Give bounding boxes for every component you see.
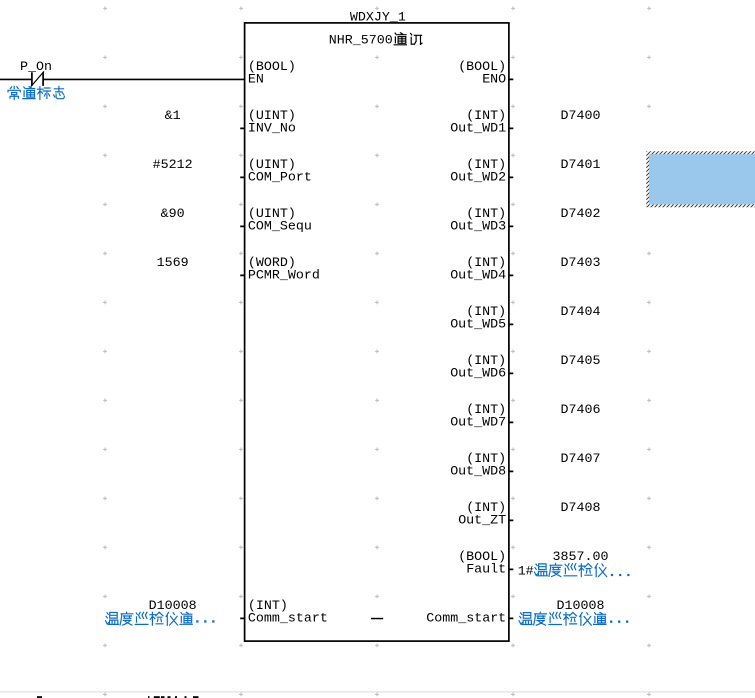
svg-text:Out_WD8: Out_WD8 [450,465,506,480]
svg-text:D10008: D10008 [149,599,197,614]
svg-text:1#: 1# [518,564,534,579]
svg-text:NHR_5700: NHR_5700 [329,33,393,48]
svg-text:D7402: D7402 [561,207,601,222]
svg-text:PCMR_Word: PCMR_Word [248,269,320,284]
svg-text:Out_WD5: Out_WD5 [450,318,506,333]
svg-text:EN: EN [248,73,264,88]
svg-text:Out_WD6: Out_WD6 [450,367,506,382]
svg-text:D7404: D7404 [561,305,601,320]
svg-text:Out_WD7: Out_WD7 [450,416,506,431]
svg-text:P_On: P_On [20,60,52,75]
svg-text:D7401: D7401 [561,158,601,173]
svg-text:Fault: Fault [466,563,506,578]
svg-text:Out_WD3: Out_WD3 [450,220,506,235]
svg-text:Out_WD2: Out_WD2 [450,171,506,186]
svg-text:D7406: D7406 [561,403,601,418]
svg-text:1569: 1569 [157,256,189,271]
svg-text:COM_Sequ: COM_Sequ [248,220,312,235]
svg-text:D7400: D7400 [561,109,601,124]
svg-text:Out_WD1: Out_WD1 [450,122,506,137]
svg-text:D10008: D10008 [557,599,605,614]
svg-text:D7408: D7408 [561,501,601,516]
svg-text:COM_Port: COM_Port [248,171,312,186]
svg-text:3857.00: 3857.00 [553,550,609,565]
svg-text:#5212: #5212 [153,158,193,173]
svg-text:INV_No: INV_No [248,122,296,137]
svg-text:Comm_start: Comm_start [426,612,506,627]
svg-text:&90: &90 [161,207,185,222]
svg-text:D7407: D7407 [561,452,601,467]
svg-text:Comm_start: Comm_start [248,612,328,627]
svg-text:WDXJY_1: WDXJY_1 [350,11,406,26]
svg-text:D7403: D7403 [561,256,601,271]
svg-text:D7405: D7405 [561,354,601,369]
svg-text:&1: &1 [165,109,181,124]
svg-text:Out_ZT: Out_ZT [458,514,506,529]
svg-text:Out_WD4: Out_WD4 [450,269,506,284]
svg-text:ENO: ENO [482,73,506,88]
